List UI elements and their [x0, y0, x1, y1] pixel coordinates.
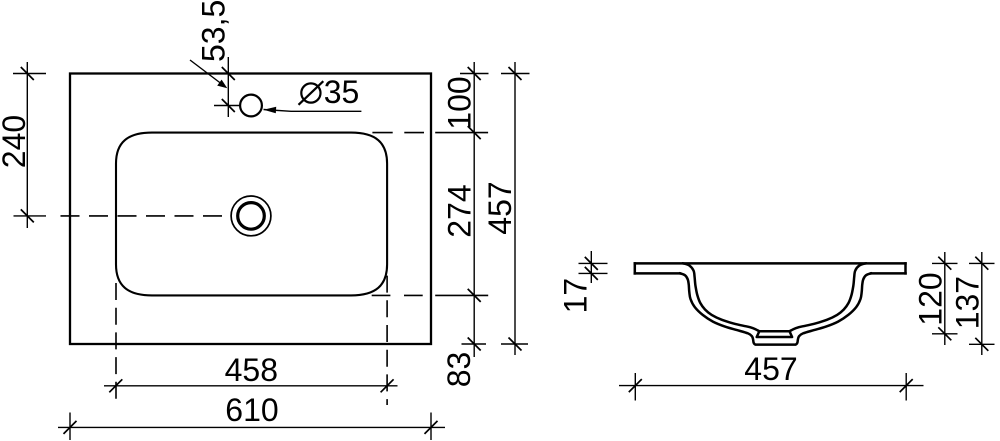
- svg-text:35: 35: [324, 74, 360, 110]
- svg-text:457: 457: [744, 351, 797, 387]
- svg-text:457: 457: [482, 181, 518, 234]
- svg-text:83: 83: [441, 352, 477, 388]
- svg-text:17: 17: [558, 278, 594, 314]
- svg-text:274: 274: [442, 184, 478, 237]
- svg-text:240: 240: [0, 115, 32, 168]
- svg-text:53,5: 53,5: [196, 0, 232, 62]
- svg-text:458: 458: [225, 352, 278, 388]
- svg-text:120: 120: [912, 272, 948, 325]
- svg-text:610: 610: [225, 392, 278, 428]
- svg-text:100: 100: [442, 76, 478, 129]
- svg-text:137: 137: [949, 276, 985, 329]
